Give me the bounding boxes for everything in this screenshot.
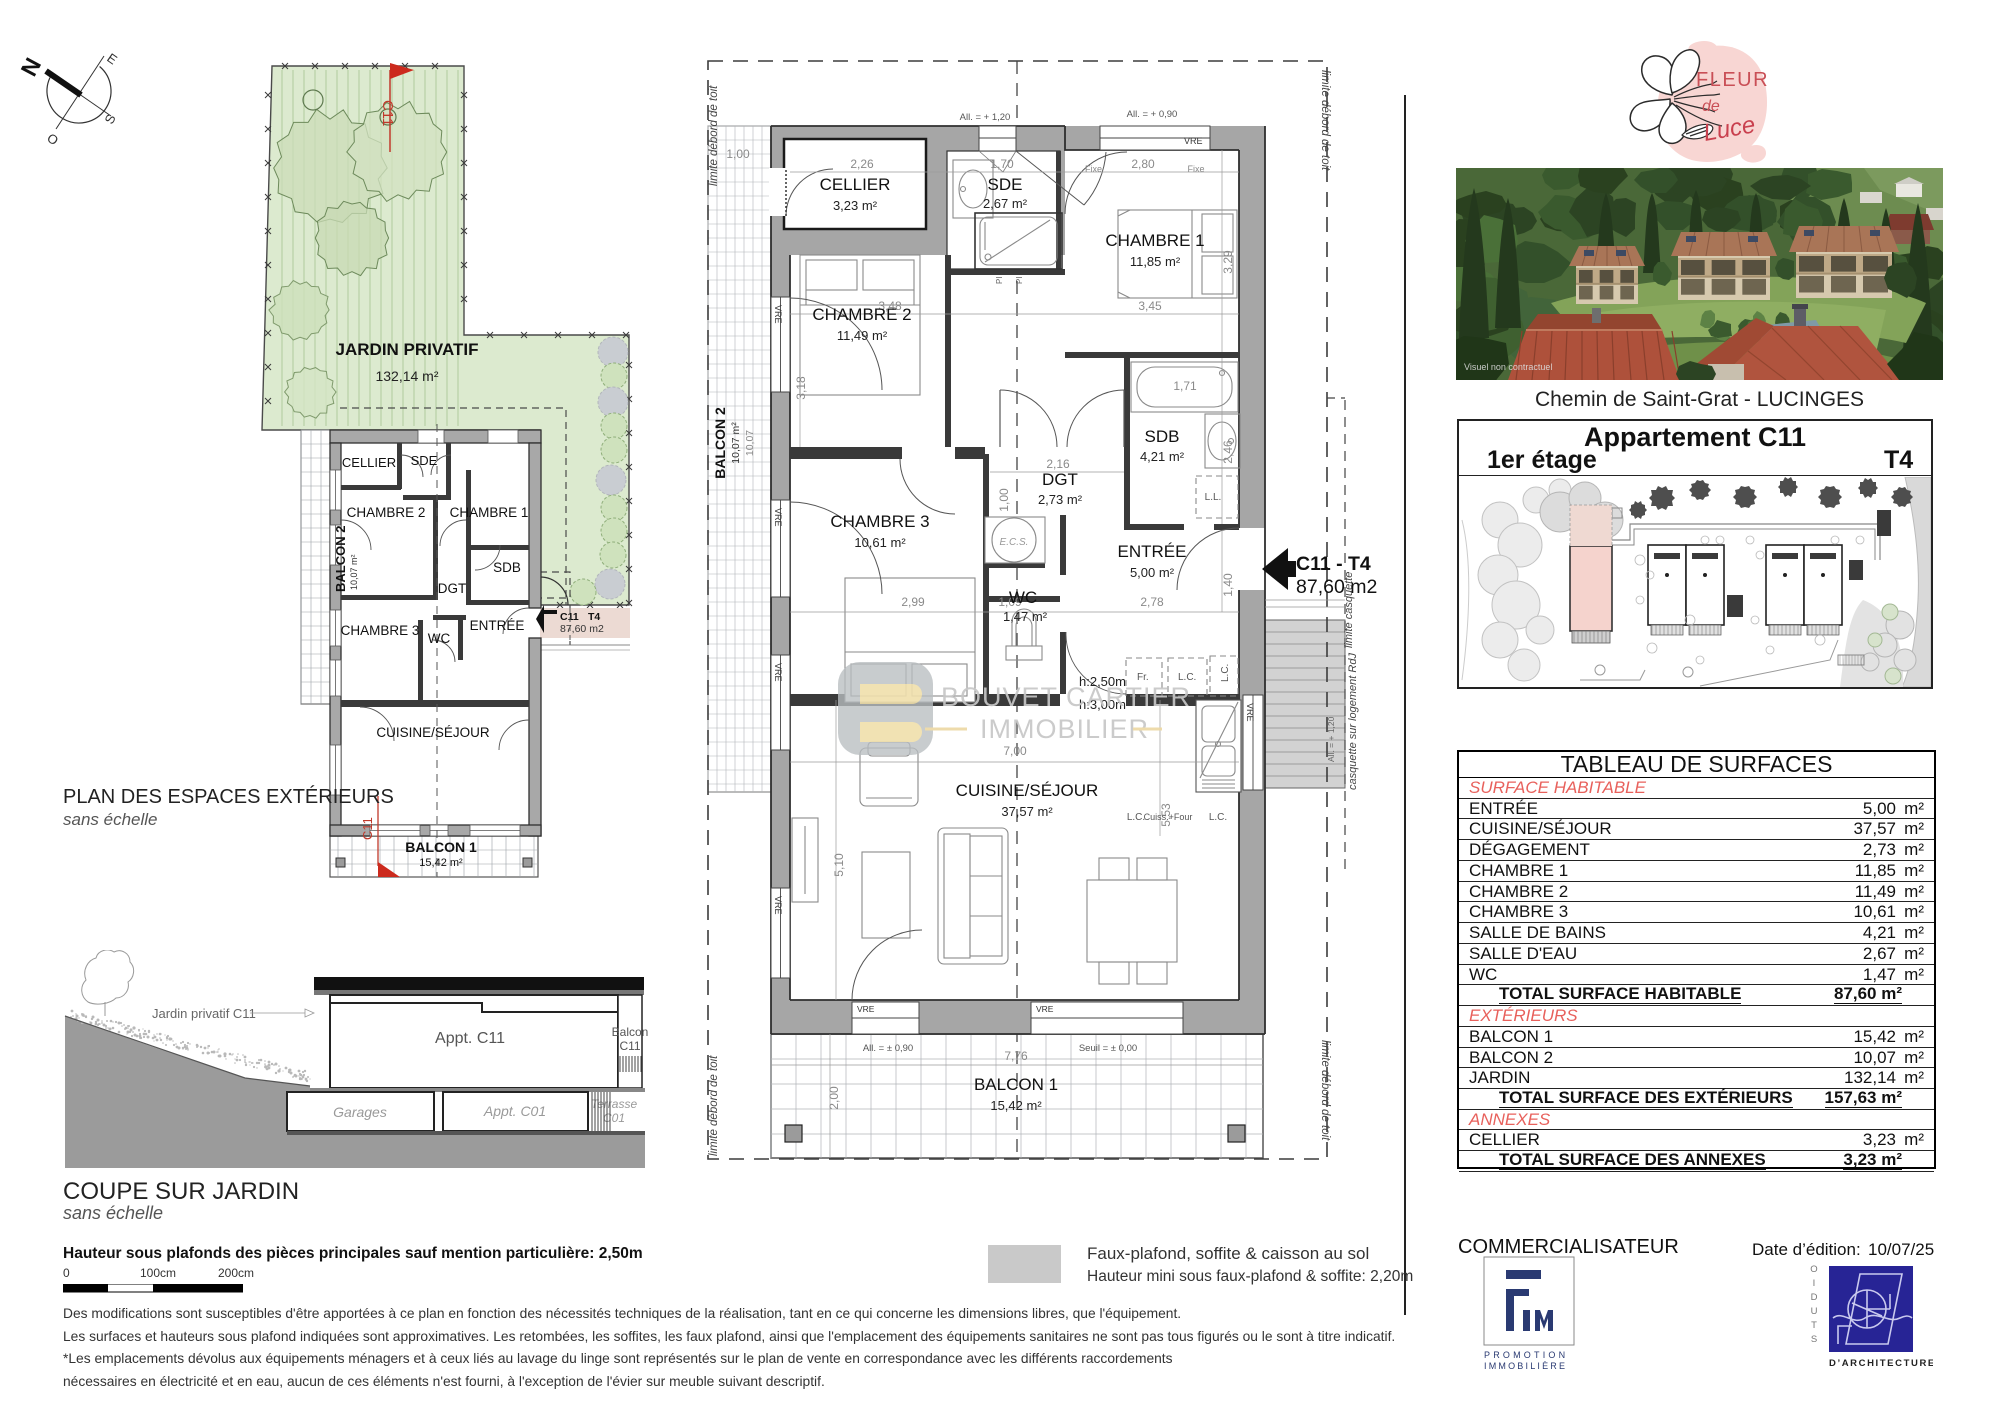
svg-text:N: N: [20, 53, 46, 80]
svg-text:CELLIER: CELLIER: [342, 455, 396, 470]
svg-text:BALCON 1: BALCON 1: [405, 839, 477, 855]
svg-text:CHAMBRE 3: CHAMBRE 3: [341, 623, 420, 638]
svg-text:CHAMBRE 1: CHAMBRE 1: [1105, 231, 1204, 250]
svg-text:5,10: 5,10: [832, 853, 846, 877]
svg-text:S: S: [101, 111, 118, 126]
svg-text:BALCON 1: BALCON 1: [974, 1075, 1058, 1094]
svg-text:casquette sur logement RdJ: casquette sur logement RdJ: [1347, 653, 1359, 790]
svg-text:SDB: SDB: [1145, 427, 1180, 446]
svg-text:CHAMBRE 1: CHAMBRE 1: [450, 505, 529, 520]
svg-text:S: S: [1811, 1334, 1817, 1345]
svg-text:CHAMBRE 2: CHAMBRE 2: [812, 305, 911, 324]
svg-text:L.C.: L.C.: [1127, 812, 1145, 823]
svg-text:2,26: 2,26: [850, 157, 874, 171]
svg-text:87,60 m2: 87,60 m2: [1296, 576, 1377, 598]
svg-text:SDE: SDE: [411, 453, 438, 468]
svg-text:2,78: 2,78: [1140, 595, 1164, 609]
svg-text:T: T: [1811, 1320, 1817, 1331]
svg-text:CUISINE/SÉJOUR: CUISINE/SÉJOUR: [376, 725, 490, 740]
svg-text:ENTRÉE: ENTRÉE: [1118, 542, 1187, 561]
svg-text:Fixe: Fixe: [1187, 164, 1204, 174]
svg-text:7,00: 7,00: [1003, 744, 1027, 758]
svg-text:PI: PI: [1015, 276, 1024, 284]
svg-text:WC: WC: [428, 631, 451, 646]
svg-text:132,14 m²: 132,14 m²: [375, 368, 438, 384]
svg-text:15,42 m²: 15,42 m²: [990, 1098, 1042, 1113]
svg-text:Visuel non contractuel: Visuel non contractuel: [1464, 362, 1552, 372]
svg-text:1,40: 1,40: [1221, 573, 1235, 597]
svg-text:L.L.: L.L.: [1205, 492, 1222, 503]
svg-text:CHAMBRE 3: CHAMBRE 3: [830, 512, 929, 531]
svg-text:Appt. C11: Appt. C11: [435, 1030, 505, 1047]
svg-text:E: E: [104, 50, 120, 67]
svg-text:D’ARCHITECTURE: D’ARCHITECTURE: [1829, 1358, 1933, 1369]
svg-text:4,21 m²: 4,21 m²: [1140, 449, 1185, 464]
svg-text:VRE: VRE: [1245, 703, 1255, 722]
svg-text:1,00: 1,00: [997, 488, 1011, 512]
svg-text:DGT: DGT: [1042, 470, 1078, 489]
svg-text:BALCON 2: BALCON 2: [712, 407, 728, 479]
svg-text:1,47 m²: 1,47 m²: [1003, 609, 1048, 624]
svg-text:VRE: VRE: [773, 305, 783, 324]
svg-text:All. = + 1,20: All. = + 1,20: [960, 112, 1011, 123]
svg-text:87,60 m2: 87,60 m2: [560, 623, 604, 635]
svg-text:DGT: DGT: [438, 581, 467, 596]
svg-text:BALCON 2: BALCON 2: [333, 526, 348, 592]
svg-text:PI: PI: [995, 276, 1004, 284]
svg-text:7,76: 7,76: [1004, 1049, 1028, 1063]
svg-text:CHAMBRE 2: CHAMBRE 2: [347, 505, 426, 520]
svg-text:VRE: VRE: [773, 508, 783, 527]
svg-text:Appt. C01: Appt. C01: [483, 1103, 546, 1119]
svg-text:VRE: VRE: [773, 663, 783, 682]
svg-text:limite débord de toit: limite débord de toit: [708, 1055, 720, 1156]
svg-text:3,45: 3,45: [1138, 299, 1162, 313]
svg-text:37,57 m²: 37,57 m²: [1001, 804, 1053, 819]
svg-text:D: D: [1811, 1292, 1818, 1303]
svg-text:2,80: 2,80: [1131, 157, 1155, 171]
svg-text:2,00: 2,00: [827, 1086, 841, 1110]
svg-text:de: de: [1702, 98, 1720, 115]
svg-text:Cuiss.+Four: Cuiss.+Four: [1144, 812, 1193, 822]
svg-text:3,29: 3,29: [1221, 250, 1235, 274]
svg-text:limite débord de toit: limite débord de toit: [1319, 1040, 1331, 1141]
svg-text:Seuil = ± 0,00: Seuil = ± 0,00: [1079, 1043, 1137, 1054]
svg-text:10,07 m²: 10,07 m²: [730, 422, 742, 464]
svg-text:Garages: Garages: [333, 1104, 387, 1120]
svg-text:C11: C11: [360, 817, 375, 840]
svg-text:C01: C01: [603, 1111, 625, 1125]
svg-text:JARDIN PRIVATIF: JARDIN PRIVATIF: [336, 340, 479, 359]
svg-text:T4: T4: [588, 611, 600, 623]
svg-text:Balcon: Balcon: [612, 1025, 649, 1039]
svg-text:10,61 m²: 10,61 m²: [854, 535, 906, 550]
svg-text:FLEUR: FLEUR: [1696, 69, 1769, 91]
svg-text:IMMOBILIER: IMMOBILIER: [980, 714, 1149, 744]
svg-text:5,00 m²: 5,00 m²: [1130, 565, 1175, 580]
svg-text:SDB: SDB: [493, 560, 521, 575]
svg-text:VRE: VRE: [857, 1004, 875, 1014]
svg-text:L.C.: L.C.: [1220, 664, 1231, 682]
svg-text:SDE: SDE: [988, 175, 1023, 194]
svg-text:CUISINE/SÉJOUR: CUISINE/SÉJOUR: [956, 781, 1099, 800]
svg-text:3,18: 3,18: [794, 376, 808, 400]
svg-text:3,23 m²: 3,23 m²: [833, 198, 878, 213]
svg-text:2,67 m²: 2,67 m²: [983, 196, 1028, 211]
svg-text:IMMOBILIÈRE: IMMOBILIÈRE: [1484, 1361, 1567, 1370]
svg-text:O: O: [1810, 1264, 1817, 1275]
svg-text:limite débord de toit: limite débord de toit: [1319, 70, 1331, 171]
svg-text:15,42 m²: 15,42 m²: [419, 857, 463, 869]
svg-text:O: O: [44, 130, 61, 148]
svg-text:2,16: 2,16: [1046, 457, 1070, 471]
svg-text:U: U: [1811, 1306, 1818, 1317]
svg-text:2,99: 2,99: [901, 595, 925, 609]
svg-text:2,46: 2,46: [1221, 440, 1235, 464]
svg-text:1,70: 1,70: [990, 157, 1014, 171]
svg-text:PROMOTION: PROMOTION: [1484, 1350, 1568, 1360]
svg-text:E.C.S.: E.C.S.: [1000, 537, 1029, 548]
svg-text:Jardin privatif C11: Jardin privatif C11: [152, 1006, 256, 1021]
svg-text:2,73 m²: 2,73 m²: [1038, 492, 1083, 507]
svg-text:limite débord de toit: limite débord de toit: [708, 85, 720, 186]
svg-text:All. = ± 0,90: All. = ± 0,90: [863, 1043, 913, 1054]
svg-text:ENTRÉE: ENTRÉE: [470, 618, 525, 633]
svg-text:1,71: 1,71: [1173, 379, 1197, 393]
svg-text:All. = + 1,20: All. = + 1,20: [1326, 716, 1336, 762]
svg-text:All. = + 0,90: All. = + 0,90: [1127, 109, 1178, 120]
svg-text:I: I: [1813, 1278, 1816, 1289]
svg-text:11,49 m²: 11,49 m²: [837, 328, 888, 343]
svg-text:C11: C11: [560, 611, 579, 623]
svg-text:11,85 m²: 11,85 m²: [1130, 254, 1181, 269]
svg-text:C11: C11: [379, 100, 396, 126]
svg-text:10,07 m²: 10,07 m²: [349, 554, 359, 590]
svg-text:10,07: 10,07: [744, 430, 756, 456]
svg-text:BOUVET CARTIER: BOUVET CARTIER: [941, 682, 1191, 712]
svg-text:VRE: VRE: [1184, 136, 1203, 146]
svg-text:C11 - T4: C11 - T4: [1296, 553, 1371, 575]
svg-text:L.C.: L.C.: [1209, 812, 1227, 823]
svg-text:Fixe: Fixe: [1085, 164, 1102, 174]
svg-text:WC: WC: [1009, 588, 1037, 607]
svg-text:CELLIER: CELLIER: [820, 175, 891, 194]
svg-text:C11: C11: [619, 1039, 640, 1053]
svg-text:1,00: 1,00: [726, 147, 750, 161]
svg-text:VRE: VRE: [773, 896, 783, 915]
svg-text:VRE: VRE: [1036, 1004, 1054, 1014]
